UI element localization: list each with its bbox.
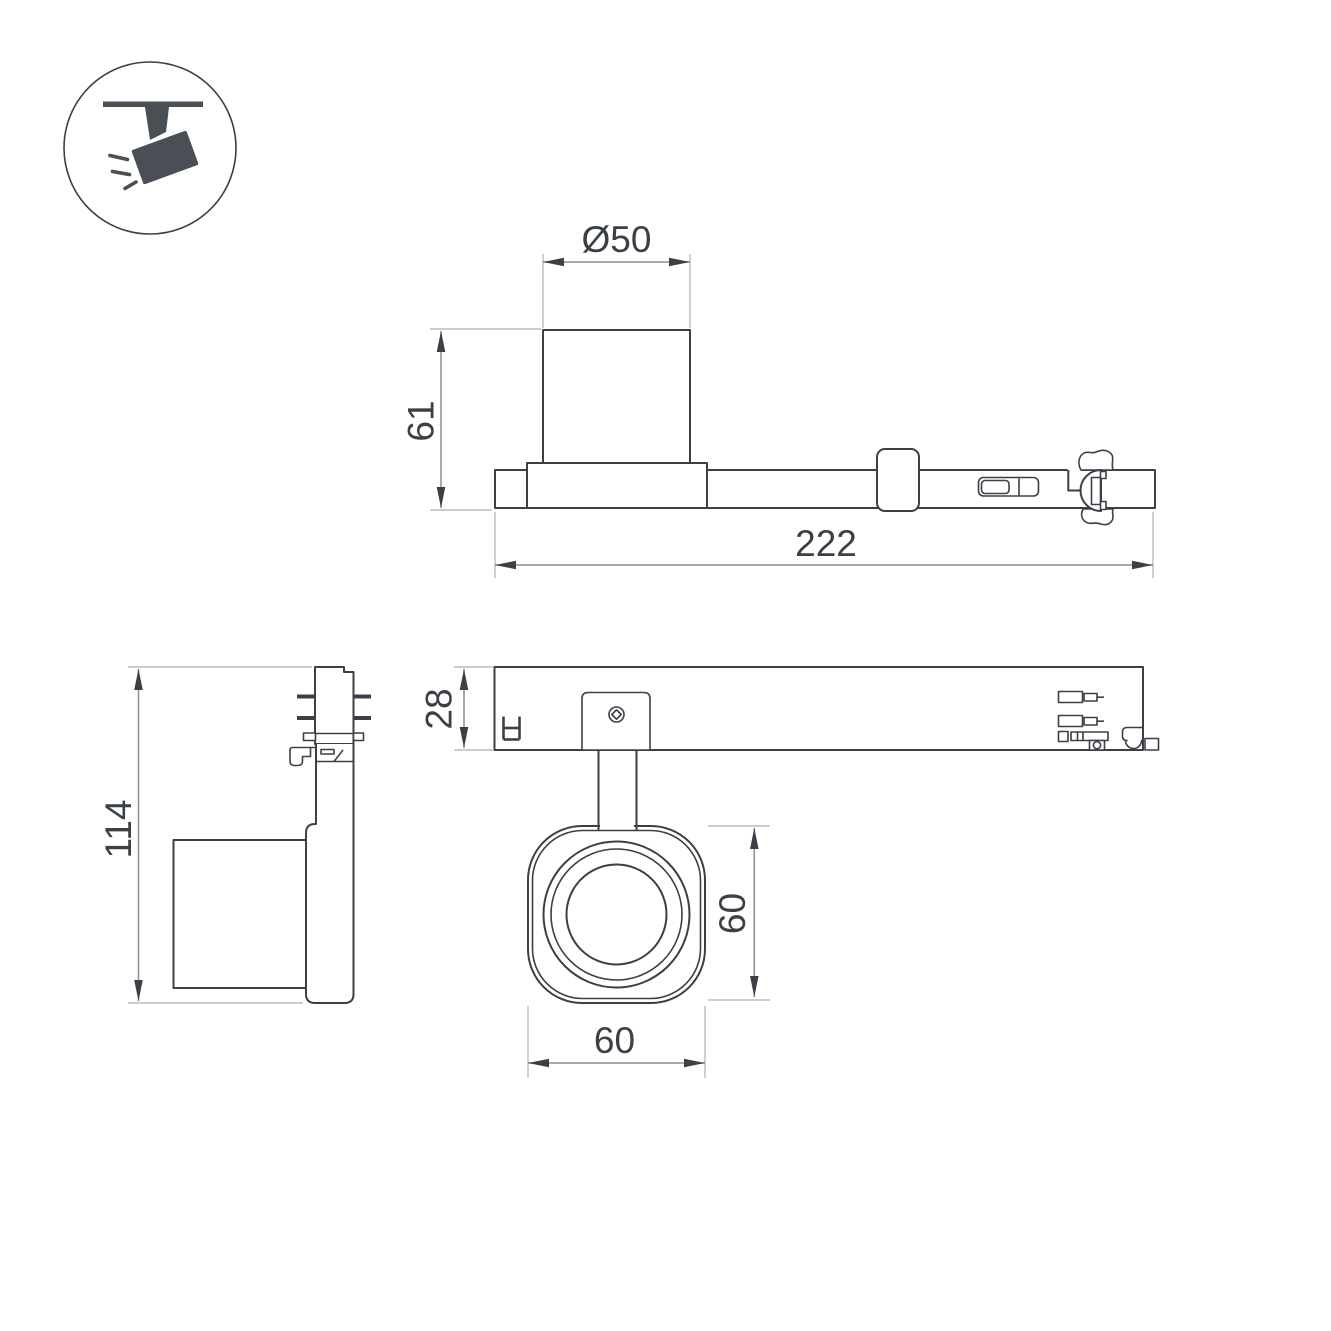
technical-drawing: Ø50 61 222 (0, 0, 1331, 1331)
dim-length-222: 222 (495, 512, 1153, 578)
view-plan: 28 60 60 (419, 667, 1159, 1078)
switch-knob (982, 481, 1010, 494)
dim-diameter-50: Ø50 (543, 219, 690, 328)
end-lug (1145, 739, 1159, 751)
adapter-flange-right (354, 733, 364, 741)
track-spotlight-icon (64, 62, 236, 234)
mounting-base (527, 463, 707, 508)
luminaire-body (306, 744, 354, 1003)
head-outer-squircle (528, 826, 705, 1003)
power-selector-switch (979, 478, 1039, 497)
drawing-sheet: Ø50 61 222 (0, 0, 1331, 1331)
icon-ceiling-track-bar (103, 102, 203, 108)
dim-total-height-label: 114 (98, 800, 139, 859)
view-front-elevation: 114 (98, 667, 371, 1003)
track-adapter (315, 667, 354, 744)
view-side-elevation: Ø50 61 222 (401, 219, 1156, 578)
spot-head-plan (528, 750, 705, 1003)
dim-head-width-60: 60 (528, 1006, 705, 1078)
dim-track-depth-28: 28 (419, 667, 494, 750)
adapter-flange-left (304, 733, 316, 741)
dim-head-width-label: 60 (594, 1020, 635, 1061)
locking-hook (290, 748, 316, 766)
adapter-block (877, 449, 919, 511)
dim-diameter-label: Ø50 (582, 219, 652, 260)
lens-housing (174, 840, 307, 988)
dim-track-depth-label: 28 (419, 688, 460, 729)
dim-head-height-label: 60 (712, 893, 753, 934)
clamp-tab-top (1101, 472, 1107, 479)
driver-cylinder (543, 330, 690, 463)
dim-length-label: 222 (795, 523, 857, 564)
end-clamp-jaw (1092, 478, 1101, 505)
dim-head-height-60: 60 (708, 826, 770, 1000)
notch-erase (1068, 468, 1082, 490)
clamp-tab-bottom (1101, 502, 1107, 510)
dim-height-label: 61 (401, 400, 442, 441)
spring-clip-top (1079, 450, 1113, 470)
